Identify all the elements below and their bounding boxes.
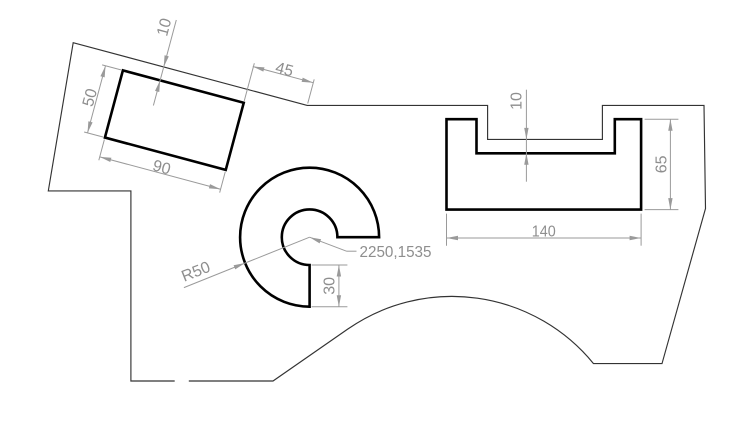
svg-text:65: 65 bbox=[654, 155, 671, 173]
svg-text:2250,1535: 2250,1535 bbox=[360, 244, 432, 261]
svg-text:140: 140 bbox=[532, 223, 556, 240]
svg-text:10: 10 bbox=[509, 92, 526, 110]
svg-text:R50: R50 bbox=[179, 259, 213, 286]
svg-text:30: 30 bbox=[322, 277, 339, 295]
svg-text:50: 50 bbox=[80, 87, 101, 109]
